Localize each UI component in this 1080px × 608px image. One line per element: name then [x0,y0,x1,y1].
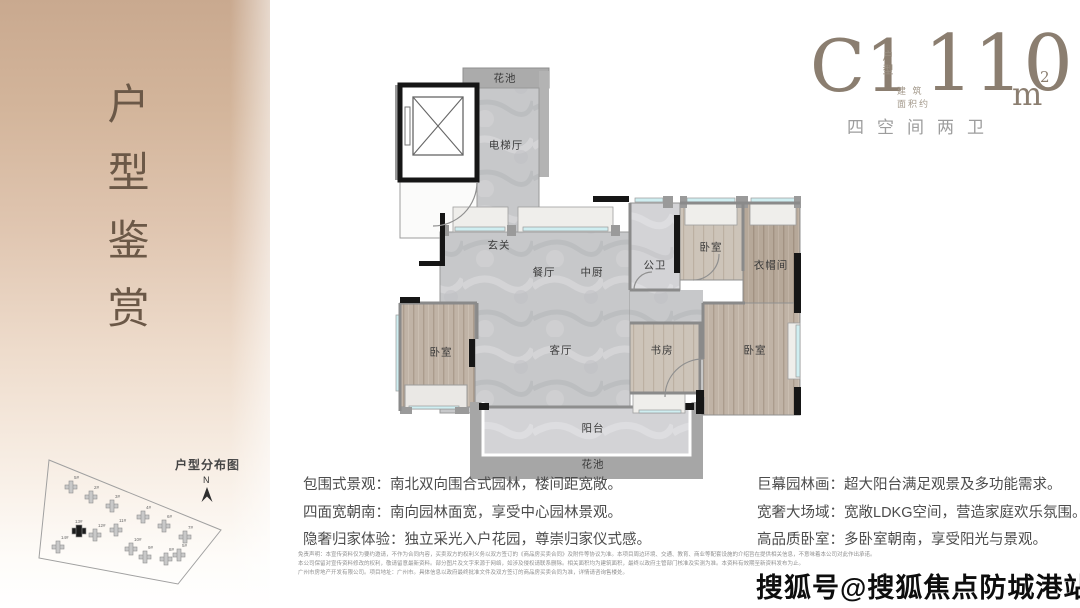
area-superscript: 2 [1040,68,1050,86]
siteplan-building-labels: 5# 2# 3# 4# 6# 7# 14# 13# 12# 11# 10# 9#… [61,475,194,552]
floorplan: 花池 电梯厅 玄关 餐厅 中厨 公卫 卧室 衣帽间 卧室 客厅 书房 卧室 阳台… [393,57,807,483]
room-label-bedroom-right: 卧室 [744,343,767,358]
unit-code-tag: 户型 [879,50,895,78]
page: 户型鉴赏 [0,0,1080,608]
room-label-bedroom-left: 卧室 [430,345,453,360]
siteplan-title: 户型分布图 [175,456,240,473]
room-label-balcony: 阳台 [582,421,605,436]
room-label-elevator-hall: 电梯厅 [489,138,524,153]
siteplan-highlighted-building [72,525,86,537]
building-label: 10# [134,537,142,542]
bedroom-right-floor [703,303,800,415]
room-label-flowerbed-bottom: 花池 [582,457,605,472]
building-label: 2# [94,485,100,490]
feature-list-left: 包围式景观：南北双向围合式园林，楼间距宽敞。 四面宽朝南：南向园林面宽，享受中心… [303,472,753,555]
room-label-closet: 衣帽间 [754,258,789,273]
elevator-icon [395,85,477,180]
room-label-study: 书房 [651,343,674,358]
building-label: 9# [148,545,154,550]
wall-strip [539,71,549,177]
bathroom-floor [630,203,680,290]
building-label: 3# [115,494,121,499]
feature-item: 包围式景观：南北双向围合式园林，楼间距宽敞。 [303,472,753,500]
feature-item: 巨幕园林画：超大阳台满足观景及多功能需求。 [757,472,1079,500]
watermark: 搜狐号@搜狐焦点防城港站 [756,566,1080,605]
building-label: 12# [98,523,106,528]
building-label: 14# [61,535,69,540]
siteplan: 5# 2# 3# 4# 6# 7# 14# 13# 12# 11# 10# 9#… [15,445,255,600]
building-label: 4# [146,505,152,510]
page-title: 户型鉴赏 [101,82,149,354]
building-label: 6# [167,514,173,519]
sidebar: 户型鉴赏 [0,0,270,608]
unit-subtitle: 四空间两卫 [847,113,997,138]
building-label: 7# [188,525,194,530]
area-unit: m [1012,75,1042,113]
room-label-flowerbed-top: 花池 [494,71,517,86]
room-label-living: 客厅 [550,343,573,358]
north-arrow-icon [202,487,213,502]
building-label: 13# [75,519,83,524]
building-label: 5# [74,475,80,480]
feature-item: 四面宽朝南：南向园林面宽，享受中心园林景观。 [303,500,753,528]
building-label: 8# [169,547,175,552]
unit-code: C1 [810,30,911,102]
siteplan-boundary [39,460,221,584]
feature-list-right: 巨幕园林画：超大阳台满足观景及多功能需求。 宽奢大场域：宽敞LDKG空间，营造家… [757,472,1079,555]
area-value: 110 [924,25,1073,103]
feature-item: 宽奢大场域：宽敞LDKG空间，营造家庭欢乐氛围。 [757,500,1079,528]
room-label-entry: 玄关 [488,238,511,253]
building-label: 5# [182,543,188,548]
siteplan-buildings [52,481,191,565]
building-label: 11# [119,518,127,523]
study-floor [630,323,700,393]
north-label: N [203,475,210,485]
disclaimer-line: 免责声明：本宣传资料仅为要约邀请，不作为合同内容，买卖双方的权利义务以双方签订的… [298,551,1078,560]
room-label-bathroom: 公卫 [644,258,667,273]
room-label-dining: 餐厅 [533,265,556,280]
room-label-kitchen: 中厨 [581,265,604,280]
room-label-bedroom-top: 卧室 [700,240,723,255]
